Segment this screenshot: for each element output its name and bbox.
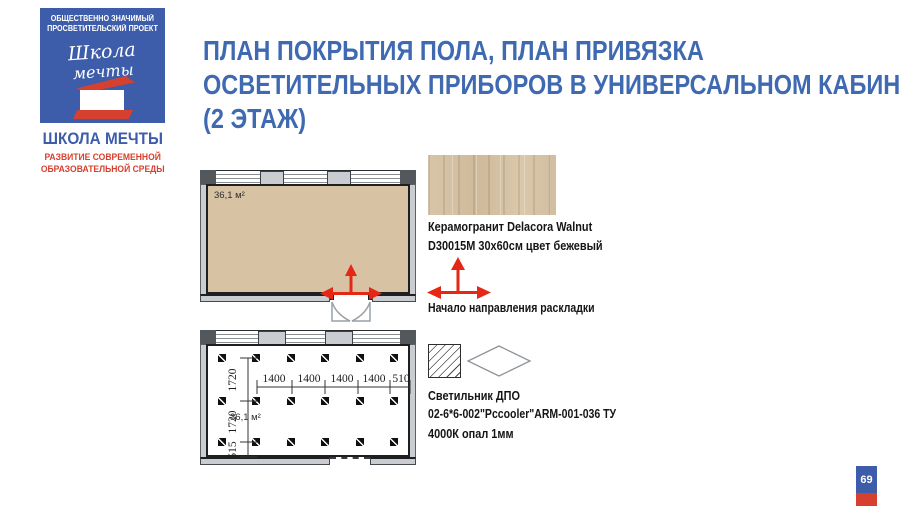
page-number-badge: 69 xyxy=(856,466,877,493)
layout-direction-legend-icon xyxy=(427,257,491,299)
bottom-wall xyxy=(200,294,330,302)
dim-1400: 1400 xyxy=(327,373,357,385)
ceramic-swatch xyxy=(428,155,556,215)
luminaire-name: Светильник ДПО xyxy=(428,388,538,403)
logo-subtitle-line2: ОБРАЗОВАТЕЛЬНОЙ СРЕДЫ xyxy=(41,164,165,176)
dim-1400: 1400 xyxy=(259,373,289,385)
luminaire-spec: 4000К опал 1мм xyxy=(428,426,530,441)
logo-top-line1: ОБЩЕСТВЕННО ЗНАЧИМЫЙ xyxy=(51,14,154,24)
page-number: 69 xyxy=(860,474,872,486)
logo-subtitle: РАЗВИТИЕ СОВРЕМЕННОЙ ОБРАЗОВАТЕЛЬНОЙ СРЕ… xyxy=(34,152,171,175)
floor-covering-plan: 36,1 м² xyxy=(200,170,416,322)
window-pier xyxy=(327,171,351,185)
logo-script-text: Школа мечты xyxy=(39,38,166,86)
page-title-line2: ОСВЕТИТЕЛЬНЫХ ПРИБОРОВ В УНИВЕРСАЛЬНОМ К… xyxy=(203,68,900,102)
logo-house-icon xyxy=(80,90,124,111)
logo-name: ШКОЛА МЕЧТЫ xyxy=(34,129,171,149)
logo-panel: ОБЩЕСТВЕННО ЗНАЧИМЫЙ ПРОСВЕТИТЕЛЬСКИЙ ПР… xyxy=(40,8,165,123)
dim-1720: 1720 xyxy=(227,363,239,397)
logo-subtitle-line1: РАЗВИТИЕ СОВРЕМЕННОЙ xyxy=(44,152,160,164)
lighting-plan: 1400 1400 1400 1400 510 1720 1720 515 36… xyxy=(200,330,416,465)
layout-direction-arrow-icon xyxy=(320,264,382,301)
slide: ОБЩЕСТВЕННО ЗНАЧИМЫЙ ПРОСВЕТИТЕЛЬСКИЙ ПР… xyxy=(0,0,900,506)
area-label: 36,1 м² xyxy=(214,190,245,201)
page-badge-accent xyxy=(856,493,877,506)
luminaire-symbol-icon xyxy=(428,344,461,378)
window-pier xyxy=(260,171,284,185)
page-title-line1: ПЛАН ПОКРЫТИЯ ПОЛА, ПЛАН ПРИВЯЗКА xyxy=(203,34,704,68)
logo-house-base-icon xyxy=(73,110,133,119)
double-door-icon xyxy=(330,301,372,323)
dim-510: 510 xyxy=(388,373,414,385)
dim-515: 515 xyxy=(227,433,239,467)
luminaire-diamond-icon xyxy=(466,344,532,378)
direction-label: Начало направления раскладки xyxy=(428,301,626,315)
page-title: ПЛАН ПОКРЫТИЯ ПОЛА, ПЛАН ПРИВЯЗКА ОСВЕТИ… xyxy=(203,34,900,136)
material-spec: D30015M 30x60см цвет бежевый xyxy=(428,238,636,253)
material-name: Керамогранит Delacora Walnut xyxy=(428,219,624,234)
logo-top-line2: ПРОСВЕТИТЕЛЬСКИЙ ПРОЕКТ xyxy=(47,24,158,34)
luminaire-model: 02-6*6-002"Pccooler"ARM-001-036 ТУ xyxy=(428,407,652,421)
area-label: 36,1 м² xyxy=(230,412,261,423)
dim-1400: 1400 xyxy=(359,373,389,385)
window-glazing xyxy=(208,171,408,185)
logo-top-text: ОБЩЕСТВЕННО ЗНАЧИМЫЙ ПРОСВЕТИТЕЛЬСКИЙ ПР… xyxy=(40,14,165,33)
page-title-line3: (2 ЭТАЖ) xyxy=(203,102,306,136)
dim-1400: 1400 xyxy=(294,373,324,385)
